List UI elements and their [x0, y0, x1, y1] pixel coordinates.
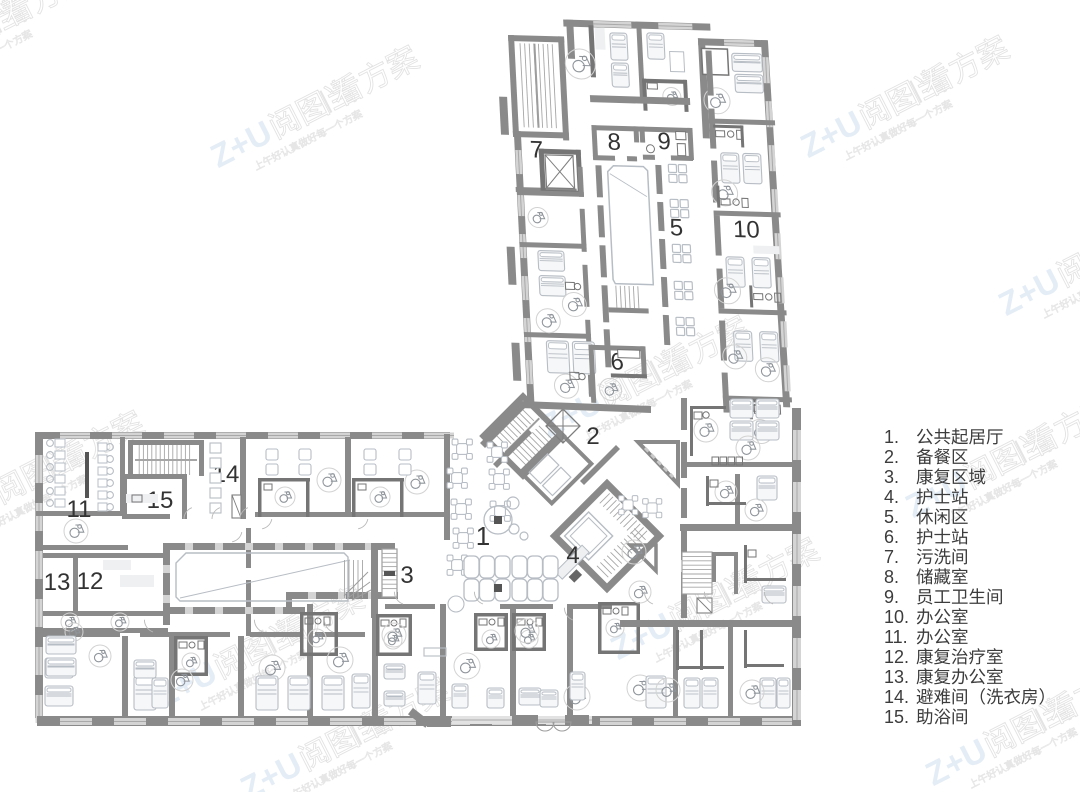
svg-text:8.: 8.	[884, 567, 899, 587]
svg-text:10.: 10.	[884, 607, 909, 627]
svg-text:11.: 11.	[884, 627, 908, 647]
svg-text:13: 13	[44, 569, 71, 596]
svg-text:6.: 6.	[884, 527, 899, 547]
svg-text:7.: 7.	[884, 547, 899, 567]
svg-text:8: 8	[607, 129, 622, 156]
svg-text:5: 5	[669, 214, 684, 241]
svg-text:1: 1	[476, 521, 490, 551]
svg-text:5.: 5.	[884, 507, 899, 527]
svg-text:2.: 2.	[884, 447, 899, 467]
svg-text:12.: 12.	[884, 647, 909, 667]
svg-text:12: 12	[77, 568, 104, 595]
svg-text:14.: 14.	[884, 687, 909, 707]
svg-text:3.: 3.	[884, 467, 899, 487]
svg-text:3: 3	[400, 562, 413, 589]
svg-text:2: 2	[586, 423, 599, 450]
svg-text:15.: 15.	[884, 707, 909, 727]
svg-text:13.: 13.	[884, 667, 909, 687]
svg-text:9.: 9.	[884, 587, 899, 607]
svg-text:9: 9	[657, 128, 672, 155]
svg-text:1.: 1.	[884, 427, 899, 447]
svg-text:4: 4	[566, 542, 579, 569]
svg-text:4.: 4.	[884, 487, 899, 507]
svg-text:10: 10	[732, 216, 760, 244]
